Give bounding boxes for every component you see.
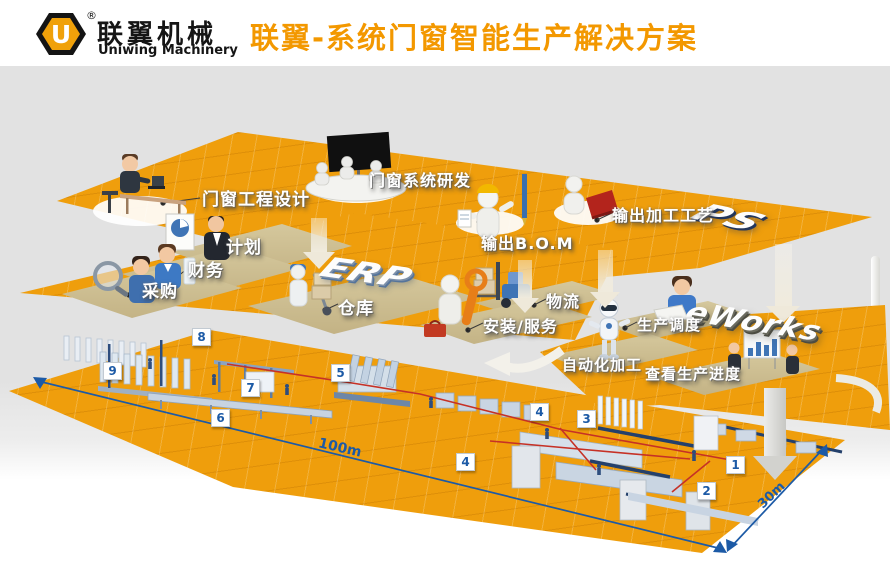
label-service: 安装/服务 <box>483 313 558 337</box>
label-dispatch: 生产调度 <box>637 314 701 335</box>
marker-4b: 4 <box>456 453 475 471</box>
marker-1: 1 <box>726 456 745 474</box>
marker-3: 3 <box>577 410 596 428</box>
marker-8: 8 <box>192 328 211 346</box>
label-craft: 输出加工工艺 <box>612 202 714 226</box>
label-research: 门窗系统研发 <box>369 167 471 191</box>
label-purchase: 采购 <box>142 277 178 302</box>
uniwing-logo-icon: U <box>34 9 88 59</box>
label-plan: 计划 <box>226 233 262 258</box>
pipe-connector <box>836 378 878 412</box>
marker-2: 2 <box>697 482 716 500</box>
figure-service-man <box>420 266 490 344</box>
flow-arrow-to-service <box>511 260 539 313</box>
machine-cluster-cnc <box>436 393 542 420</box>
label-warehouse: 仓库 <box>338 294 374 319</box>
uniwing-solution-diagram: U ® 联翼机械 Uniwing Machinery 联翼-系统门窗智能生产解决… <box>0 0 890 567</box>
label-design: 门窗工程设计 <box>202 185 310 210</box>
label-bom: 输出B.O.M <box>481 230 574 254</box>
marker-4a: 4 <box>530 403 549 421</box>
page-title: 联翼-系统门窗智能生产解决方案 <box>250 15 698 57</box>
marker-7: 7 <box>241 379 260 397</box>
company-name-en: Uniwing Machinery <box>98 43 238 58</box>
label-progress: 查看生产进度 <box>645 363 741 384</box>
logo-letter: U <box>51 20 71 49</box>
label-logistics: 物流 <box>546 288 580 312</box>
registered-mark: ® <box>86 9 97 22</box>
flow-arrow-to-floor <box>753 388 797 480</box>
marker-9: 9 <box>103 362 122 380</box>
machine-cluster-conveyor-left <box>148 393 332 424</box>
label-finance: 财务 <box>188 256 224 281</box>
label-auto: 自动化加工 <box>562 354 642 375</box>
swoosh-arrow-icon <box>484 350 562 376</box>
header-bar: U ® 联翼机械 Uniwing Machinery 联翼-系统门窗智能生产解决… <box>0 0 890 66</box>
marker-6: 6 <box>211 409 230 427</box>
flow-arrow-to-eworks-left <box>590 250 620 308</box>
marker-5: 5 <box>331 364 350 382</box>
